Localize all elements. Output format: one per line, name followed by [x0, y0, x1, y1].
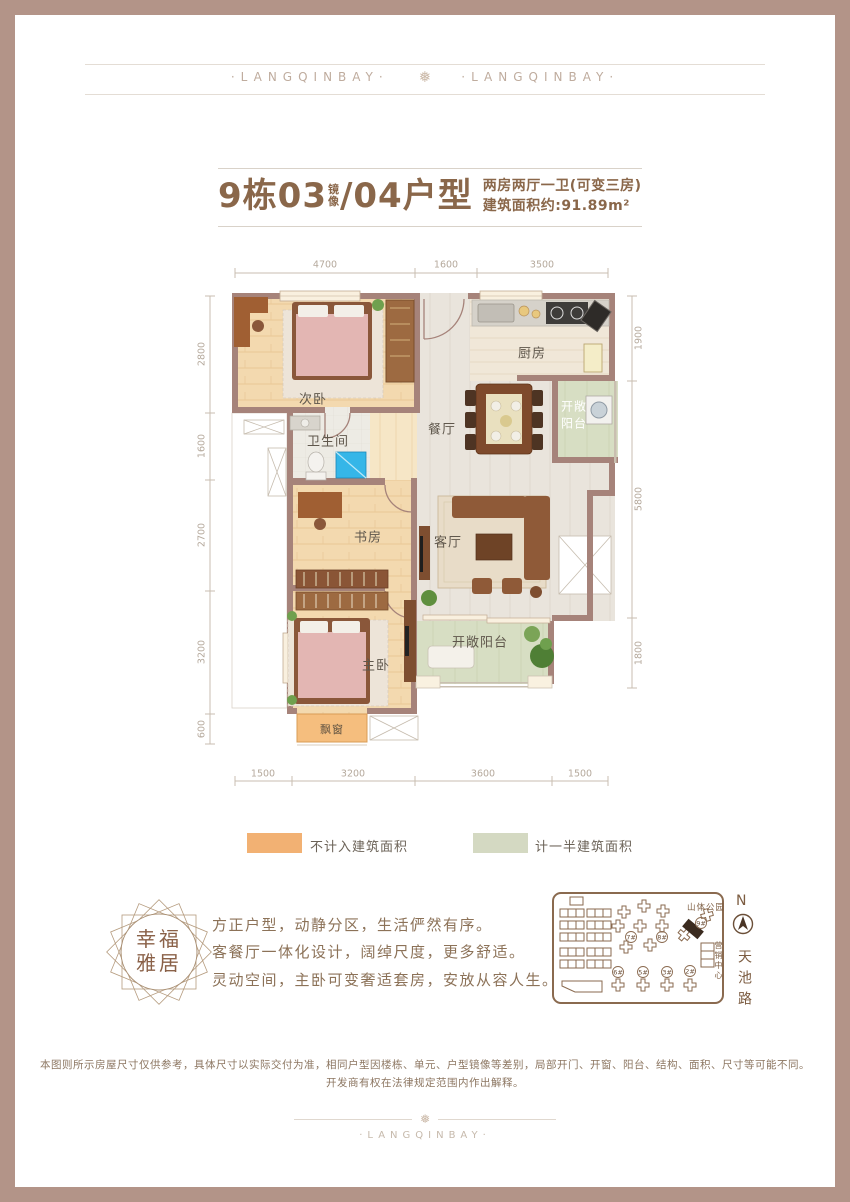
- room-label-balcony-right-2: 阳台: [561, 415, 587, 432]
- footer-wordmark: ·LANGQINBAY·: [359, 1130, 491, 1141]
- disclaimer-line1: 本图则所示房屋尺寸仅供参考，具体尺寸以实际交付为准，相同户型因楼栋、单元、户型镜…: [0, 1056, 850, 1074]
- site-map-graphic: 7# 8# 9# 6# 5# 3# 2#: [550, 885, 762, 1013]
- snowflake-icon: ❅: [420, 1112, 430, 1126]
- floorplan-poster: ·LANGQINBAY· ❅ ·LANGQINBAY· 9栋03 镜 像 /04…: [0, 0, 850, 1202]
- dim-left-4: 3200: [197, 640, 208, 664]
- title-subtitle: 两房两厅一卫(可变三房) 建筑面积约:91.89m²: [483, 176, 642, 217]
- wardrobe: [386, 300, 414, 382]
- sofa-chaise: [524, 496, 550, 580]
- bldg-7: 7#: [626, 934, 636, 942]
- bldg-3: 3#: [662, 969, 672, 977]
- floor-plan-graphic: [180, 248, 680, 823]
- dim-bottom-1: 1500: [251, 769, 275, 780]
- title-mirror-bottom: 像: [328, 196, 339, 208]
- seal-line1: 幸福: [136, 928, 182, 951]
- bldg-9: 9#: [696, 920, 706, 928]
- dim-top-1: 4700: [313, 260, 337, 271]
- seal-line2: 雅居: [136, 952, 182, 975]
- tv: [420, 536, 423, 572]
- room-label-balcony-right-1: 开敞: [561, 398, 587, 415]
- room-label-bathroom: 卫生间: [307, 431, 349, 450]
- title-unit: /04户型: [340, 179, 473, 213]
- legend-swatch-green: [473, 833, 528, 853]
- armchair: [502, 578, 522, 594]
- footer-brand: ❅ ·LANGQINBAY·: [0, 1112, 850, 1141]
- room-label-balcony-bottom: 开敞阳台: [452, 632, 508, 651]
- disclaimer: 本图则所示房屋尺寸仅供参考，具体尺寸以实际交付为准，相同户型因楼栋、单元、户型镜…: [0, 1056, 850, 1093]
- seal-graphic: 幸福 雅居: [103, 896, 215, 1008]
- plant: [287, 611, 297, 621]
- dim-left-3: 2700: [197, 523, 208, 547]
- site-map: 7# 8# 9# 6# 5# 3# 2# 山体公园 营销中心 N 天池路: [550, 885, 762, 1013]
- room-label-secondary-bedroom: 次卧: [299, 389, 327, 408]
- sink: [478, 304, 514, 322]
- header-rule-top: [85, 64, 765, 65]
- disclaimer-line2: 开发商有权在法律规定范围内作出解释。: [0, 1074, 850, 1092]
- dim-left-5: 600: [197, 720, 208, 738]
- brand-wordmark-right: ·LANGQINBAY·: [455, 70, 625, 84]
- coffee-table: [476, 534, 512, 560]
- toilet: [308, 452, 324, 472]
- plant: [287, 695, 297, 705]
- dim-right-3: 1800: [634, 641, 645, 665]
- title-block: 9栋03 镜 像 /04户型 两房两厅一卫(可变三房) 建筑面积约:91.89m…: [218, 168, 642, 227]
- dim-bottom-3: 3600: [471, 769, 495, 780]
- north-compass-icon: [734, 915, 753, 934]
- subtitle-layout: 两房两厅一卫(可变三房): [483, 176, 642, 196]
- dim-top-3: 3500: [530, 260, 554, 271]
- plant: [540, 638, 552, 650]
- legend-label-orange: 不计入建筑面积: [310, 836, 408, 855]
- room-label-living: 客厅: [434, 532, 462, 551]
- dim-right-1: 1900: [634, 326, 645, 350]
- north-label: N: [736, 893, 746, 909]
- brand-seal: 幸福 雅居: [103, 896, 215, 1008]
- legend-swatch-orange: [247, 833, 302, 853]
- dim-bottom-2: 3200: [341, 769, 365, 780]
- legend: 不计入建筑面积 计一半建筑面积: [0, 828, 850, 858]
- title-building: 9栋03: [218, 179, 327, 213]
- dim-top-2: 1600: [434, 260, 458, 271]
- bldg-6: 6#: [613, 969, 623, 977]
- bldg-8: 8#: [657, 934, 667, 942]
- subtitle-area: 建筑面积约:91.89m²: [483, 196, 642, 216]
- site-map-park-label: 山体公园: [687, 901, 725, 913]
- dim-right-2: 5800: [634, 487, 645, 511]
- site-map-lowrise: [560, 897, 611, 992]
- plant: [372, 299, 384, 311]
- legend-label-green: 计一半建筑面积: [535, 836, 633, 855]
- snowflake-icon: ❅: [415, 68, 436, 86]
- bldg-5: 5#: [638, 969, 648, 977]
- sofa: [452, 496, 526, 518]
- kitchen-balcony-door: [584, 344, 602, 372]
- site-map-towers: [612, 900, 714, 991]
- room-label-bay-window: 飘窗: [320, 721, 344, 737]
- description-line1: 方正户型，动静分区，生活俨然有序。: [212, 912, 559, 939]
- study-desk: [298, 492, 342, 518]
- brand-wordmark-left: ·LANGQINBAY·: [225, 70, 395, 84]
- road-label: 天池路: [734, 949, 754, 1012]
- bookshelf: [296, 570, 388, 588]
- title-mirror-label: 镜 像: [328, 184, 339, 208]
- dim-bottom-4: 1500: [568, 769, 592, 780]
- description: 方正户型，动静分区，生活俨然有序。 客餐厅一体化设计，阔绰尺度，更多舒适。 灵动…: [212, 912, 559, 994]
- closet: [296, 592, 388, 610]
- room-label-master-bedroom: 主卧: [362, 655, 390, 674]
- description-line2: 客餐厅一体化设计，阔绰尺度，更多舒适。: [212, 939, 559, 966]
- footer-rule-right: [438, 1119, 556, 1120]
- header-rule-bottom: [85, 94, 765, 95]
- floor-plan: 4700 1600 3500 1500 3200 3600 1500 2800 …: [180, 248, 680, 823]
- dining-furniture: [465, 384, 543, 454]
- dim-left-2: 1600: [197, 434, 208, 458]
- header-brand: ·LANGQINBAY· ❅ ·LANGQINBAY·: [0, 68, 850, 86]
- bldg-2: 2#: [685, 968, 695, 976]
- room-label-dining: 餐厅: [428, 419, 456, 438]
- room-label-kitchen: 厨房: [518, 343, 546, 362]
- dim-left-1: 2800: [197, 342, 208, 366]
- description-line3: 灵动空间，主卧可变奢适套房，安放从容人生。: [212, 967, 559, 994]
- room-label-study: 书房: [354, 527, 382, 546]
- plant: [524, 626, 540, 642]
- tv: [405, 626, 409, 656]
- plant: [421, 590, 437, 606]
- footer-rule-left: [294, 1119, 412, 1120]
- armchair: [472, 578, 492, 594]
- site-map-marketing-label: 营销中心: [713, 941, 724, 981]
